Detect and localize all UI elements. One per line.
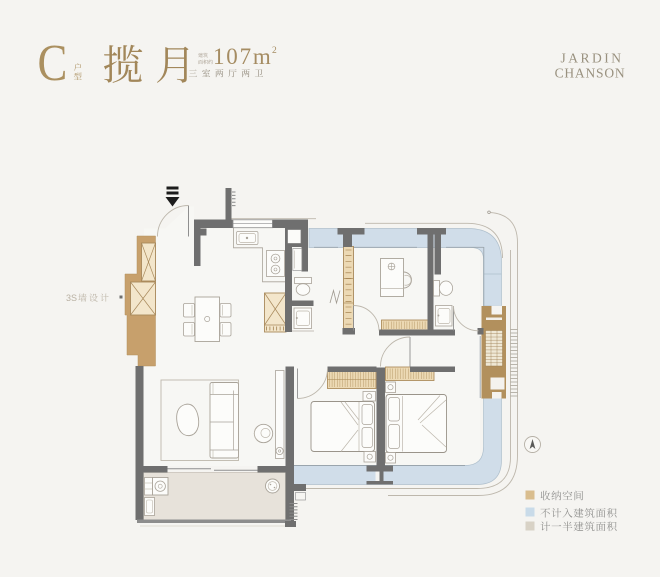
svg-text:C: C [38,35,68,92]
svg-text:JARDIN: JARDIN [560,51,623,66]
svg-text:107m: 107m [213,44,273,69]
svg-text:CHANSON: CHANSON [555,66,626,81]
svg-text:3S: 3S [66,293,77,303]
svg-text:2: 2 [272,46,277,56]
